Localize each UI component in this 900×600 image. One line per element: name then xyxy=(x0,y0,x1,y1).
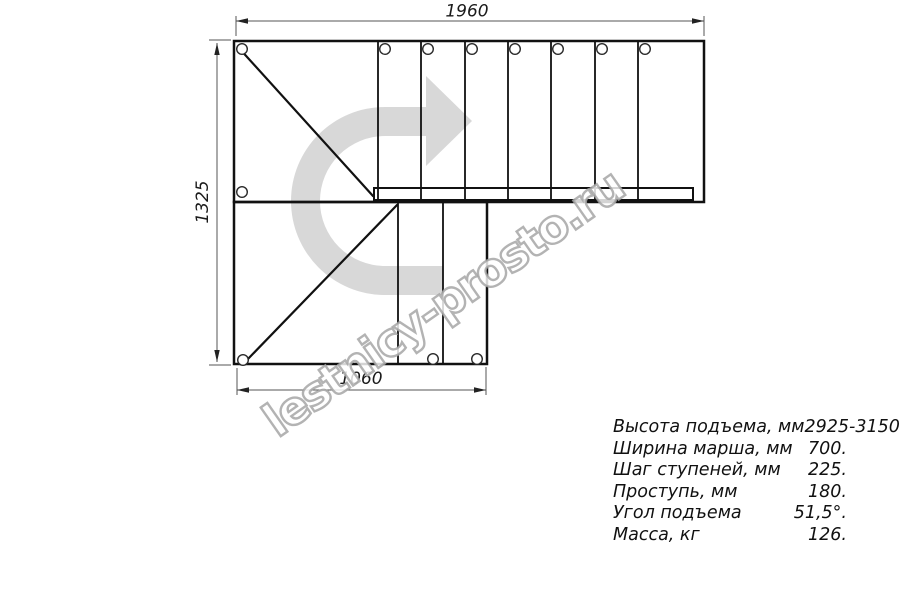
mounting-hole xyxy=(237,187,248,198)
spec-value: 700. xyxy=(808,439,847,461)
dimension-top: 1960 xyxy=(236,2,704,37)
dimension-arrowhead xyxy=(474,387,486,392)
dimension-top-label: 1960 xyxy=(445,2,488,22)
stair-plan-drawing: 1960 1325 1060 lestnicy-prosto.ru Высота… xyxy=(0,0,900,600)
spec-label: Ширина марша, мм xyxy=(613,439,793,461)
mounting-hole xyxy=(510,44,521,55)
spec-label: Угол подъема xyxy=(613,503,742,525)
spec-row-march-width: Ширина марша, мм 700. xyxy=(613,439,847,461)
dimension-left-label: 1325 xyxy=(193,180,213,223)
spec-label: Шаг ступеней, мм xyxy=(613,460,781,482)
dimension-arrowhead xyxy=(236,18,248,23)
dimension-arrowhead xyxy=(214,350,219,362)
spec-value: 2925-3150. xyxy=(804,417,900,439)
spec-row-mass: Масса, кг 126. xyxy=(613,525,847,547)
mounting-hole xyxy=(472,354,483,365)
spec-label: Масса, кг xyxy=(613,525,700,547)
spec-value: 180. xyxy=(808,482,847,504)
spec-value: 225. xyxy=(808,460,847,482)
spec-value: 51,5°. xyxy=(794,503,847,525)
mounting-hole xyxy=(423,44,434,55)
mounting-hole xyxy=(237,44,248,55)
mounting-hole xyxy=(428,354,439,365)
spec-row-height: Высота подъема, мм 2925-3150. xyxy=(613,417,847,439)
mounting-hole xyxy=(238,355,249,366)
spec-row-step-pitch: Шаг ступеней, мм 225. xyxy=(613,460,847,482)
spec-row-angle: Угол подъема 51,5°. xyxy=(613,503,847,525)
turn-direction-arrow-icon xyxy=(291,76,472,295)
turn-direction-arrow-shape xyxy=(291,76,472,295)
dimension-left: 1325 xyxy=(193,40,231,365)
spec-label: Высота подъема, мм xyxy=(613,417,804,439)
dimension-arrowhead xyxy=(214,43,219,55)
spec-table: Высота подъема, мм 2925-3150. Ширина мар… xyxy=(613,417,847,547)
dimension-arrowhead xyxy=(237,387,249,392)
dimension-arrowhead xyxy=(692,18,704,23)
spec-value: 126. xyxy=(808,525,847,547)
mounting-hole xyxy=(640,44,651,55)
spec-label: Проступь, мм xyxy=(613,482,737,504)
mounting-hole xyxy=(380,44,391,55)
mounting-hole xyxy=(467,44,478,55)
spec-row-tread: Проступь, мм 180. xyxy=(613,482,847,504)
mounting-hole xyxy=(553,44,564,55)
mounting-hole xyxy=(597,44,608,55)
